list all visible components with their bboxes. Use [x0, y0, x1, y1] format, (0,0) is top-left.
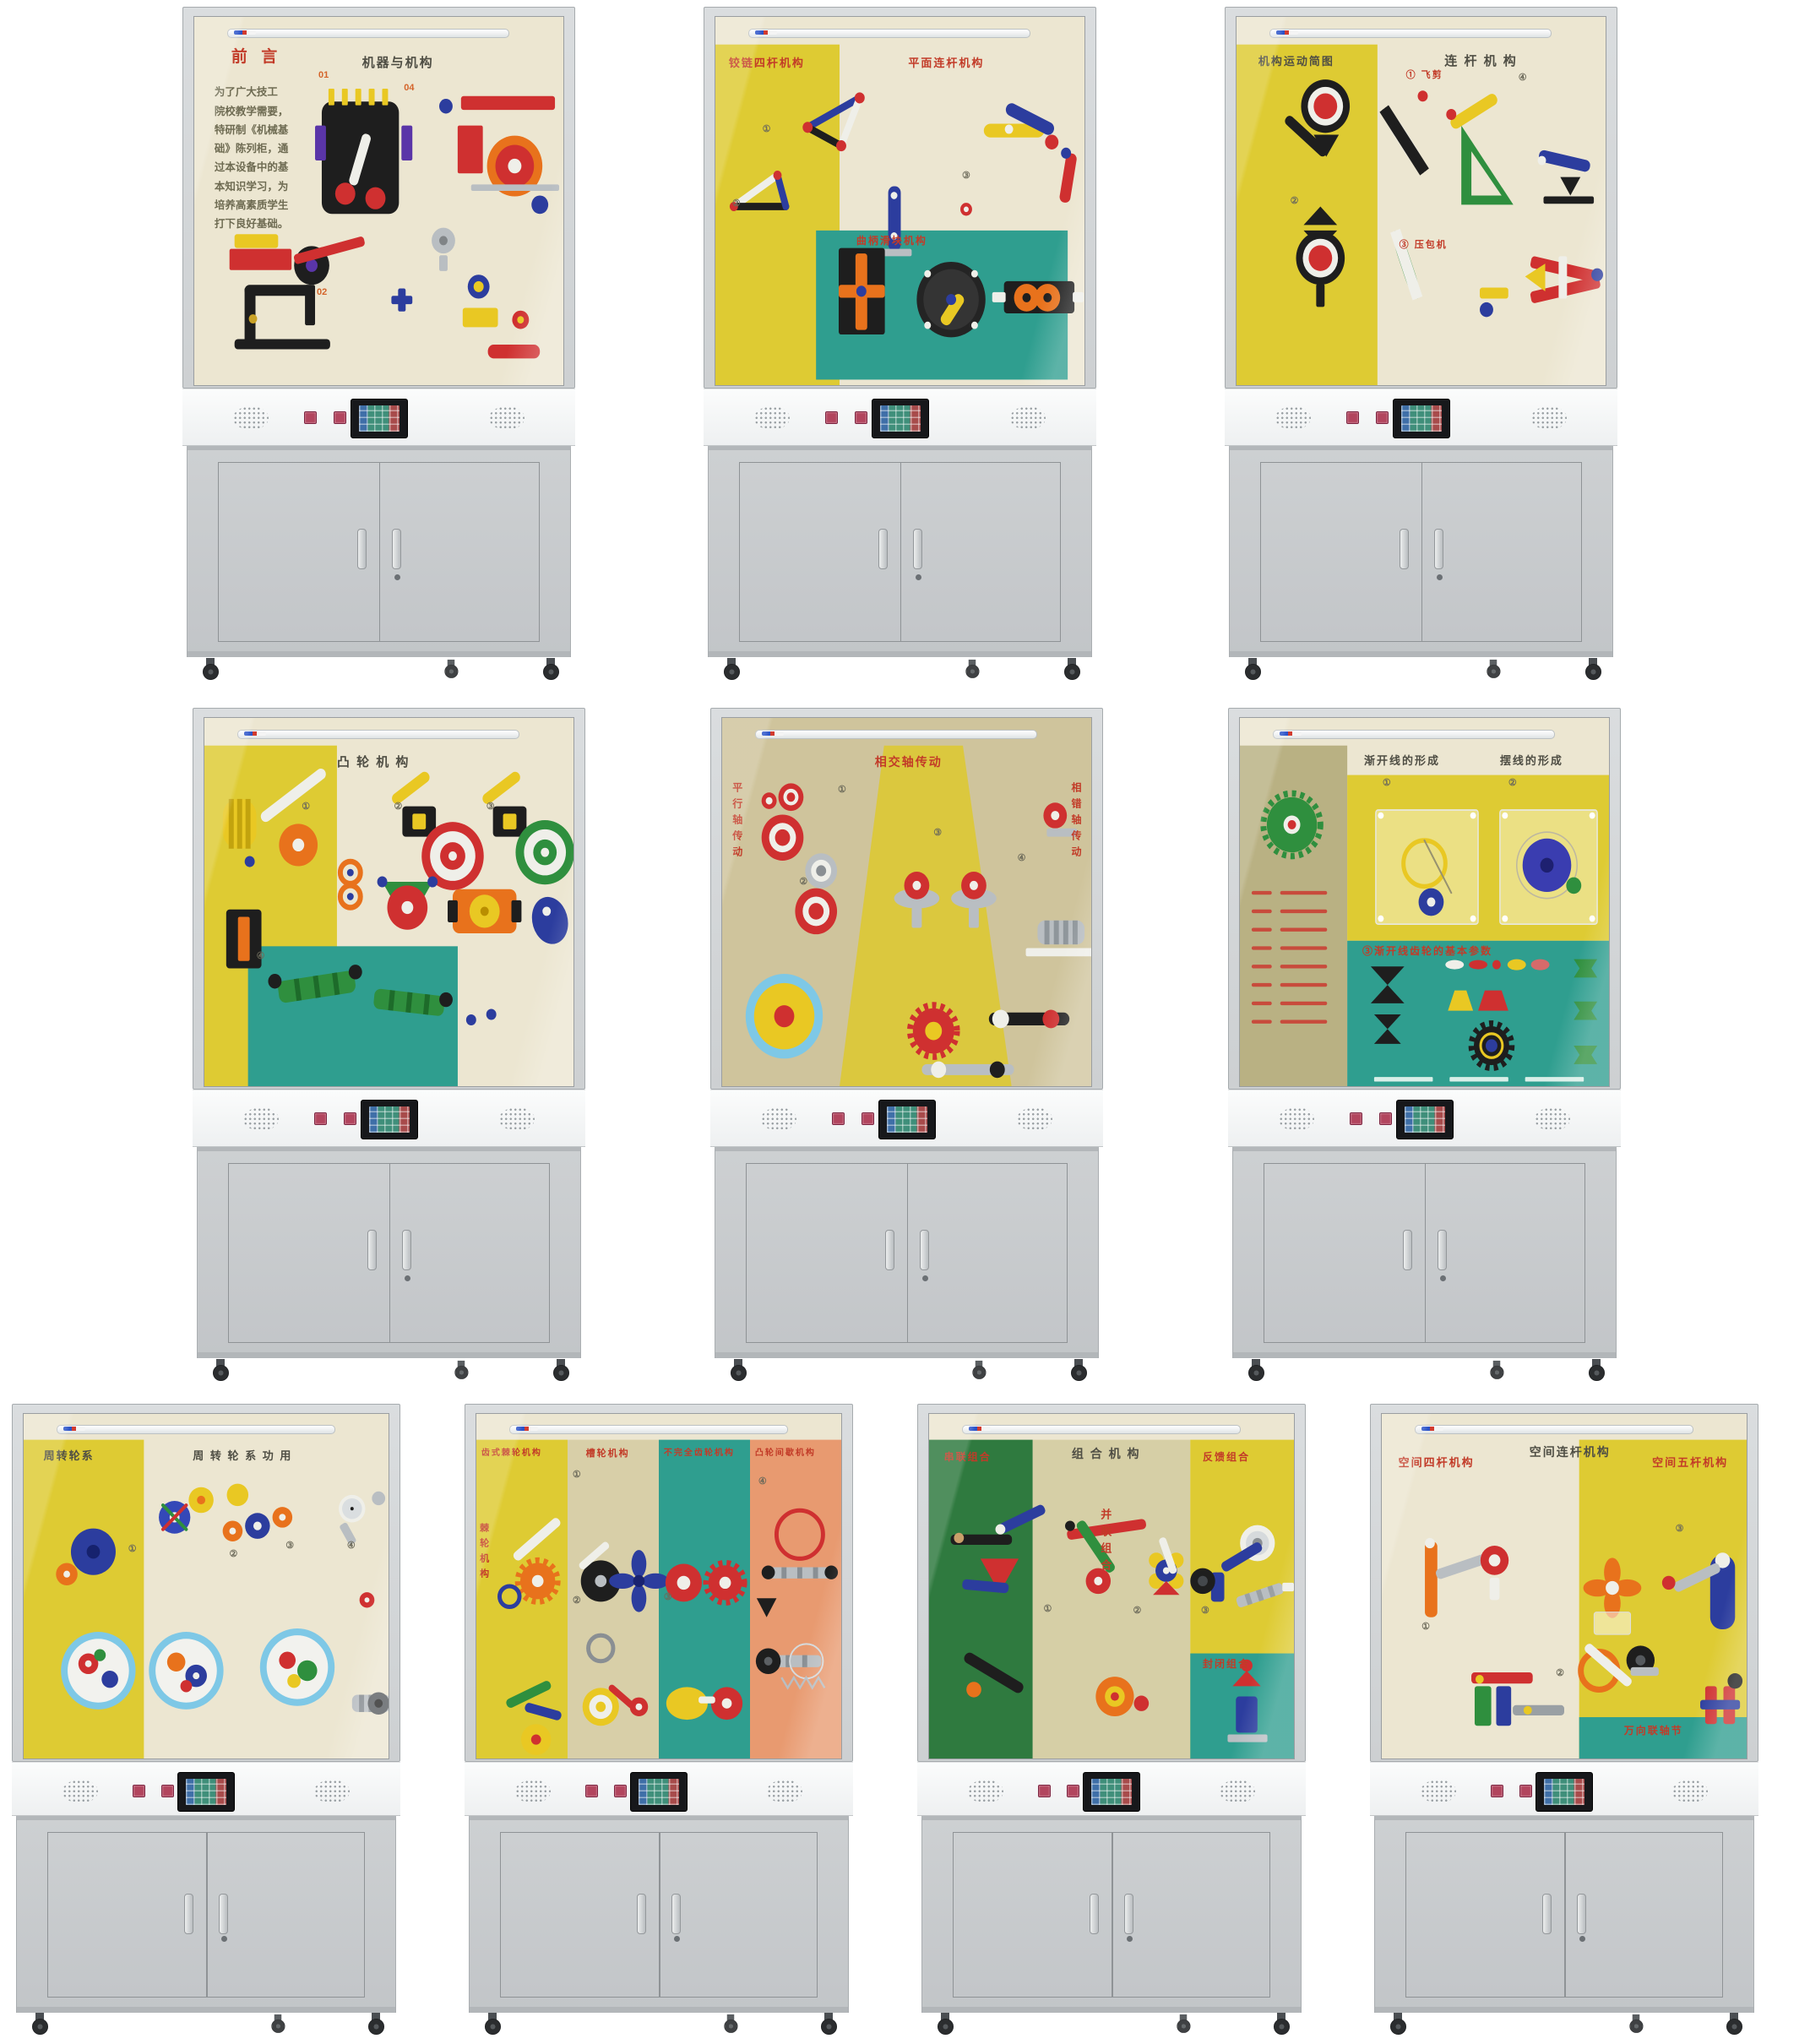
door-handle-left — [885, 1230, 894, 1270]
speaker-grille-left-icon — [1421, 1780, 1456, 1803]
console-button-2 — [344, 1112, 356, 1125]
display-marker: ② — [1508, 777, 1517, 788]
door-handle-left — [357, 529, 367, 569]
caster-wheel — [454, 1361, 470, 1379]
console-button-2 — [1067, 1785, 1079, 1797]
door-handle-right — [1438, 1230, 1447, 1270]
display-title: 机构运动简图 — [1258, 56, 1334, 68]
display-backboard: 铰链四杆机构平面连杆机构曲柄滑块机构①②③ — [715, 16, 1085, 386]
display-title: 反馈组合 — [1203, 1452, 1250, 1464]
display-title: 串联组合 — [944, 1452, 992, 1464]
display-marker: ④ — [1018, 852, 1026, 863]
caster-wheel — [367, 2013, 385, 2035]
console-button-2 — [161, 1785, 174, 1797]
display-title: 连 杆 机 构 — [1444, 54, 1518, 68]
caster-wheel — [552, 1359, 570, 1381]
caster-wheel — [1272, 2013, 1291, 2035]
touchscreen-display — [639, 1779, 679, 1805]
caster-wheel — [211, 1359, 230, 1381]
display-title: 周转轮系 — [44, 1450, 95, 1463]
control-console — [1370, 1762, 1758, 1816]
door-divider — [907, 1163, 909, 1343]
speaker-grille-left-icon — [1279, 1107, 1314, 1131]
display-marker: ② — [1556, 1667, 1564, 1678]
display-marker: ② — [732, 198, 741, 209]
display-backboard: 空间四杆机构空间连杆机构空间五杆机构万向联轴节①②③ — [1381, 1413, 1747, 1759]
console-button-2 — [1519, 1785, 1532, 1797]
door-divider — [1421, 462, 1423, 642]
keyhole-icon — [1437, 574, 1443, 580]
speaker-grille-right-icon — [314, 1780, 350, 1803]
display-backboard: 相交轴传动平行轴传动相错轴传动①②③④ — [721, 717, 1092, 1087]
display-case: 周转轮系周 转 轮 系 功 用①②③④ — [12, 1404, 400, 1762]
caster-wheel — [541, 658, 560, 680]
caster-wheel — [1489, 1361, 1505, 1379]
display-title: 空间连杆机构 — [1530, 1445, 1611, 1459]
keyhole-icon — [1579, 1936, 1585, 1942]
door-handle-left — [1090, 1894, 1099, 1934]
mechanism-models — [1240, 718, 1609, 1086]
fluorescent-lamp — [227, 29, 509, 38]
display-case: 铰链四杆机构平面连杆机构曲柄滑块机构①②③ — [704, 7, 1096, 389]
display-marker: ① — [302, 801, 310, 812]
console-button-1 — [825, 411, 838, 424]
console-button-1 — [585, 1785, 598, 1797]
cabinet-1: 前 言机器与机构010402为了广大技工 院校教学需要， 特研制《机械基 础》陈… — [182, 7, 575, 680]
door-handle-right — [1124, 1894, 1133, 1934]
fluorescent-lamp — [1273, 730, 1555, 739]
caster-row — [465, 2013, 853, 2035]
display-case: 渐开线的形成摆线的形成③渐开线齿轮的基本参数①② — [1228, 708, 1621, 1090]
mechanism-models — [204, 718, 573, 1086]
base-cupboard — [187, 446, 571, 657]
base-cupboard — [708, 446, 1092, 657]
console-button-1 — [1038, 1785, 1051, 1797]
speaker-grille-right-icon — [767, 1780, 802, 1803]
display-title: 摆线的形成 — [1500, 755, 1563, 768]
display-backboard: 机构运动简图连 杆 机 构① 飞剪③ 压包机②④ — [1236, 16, 1606, 386]
base-cupboard — [197, 1147, 581, 1358]
fluorescent-lamp — [755, 730, 1037, 739]
speaker-grille-right-icon — [1010, 406, 1046, 430]
door-handle-left — [1542, 1894, 1552, 1934]
display-marker: ② — [229, 1548, 237, 1559]
console-button-2 — [614, 1785, 627, 1797]
touchscreen — [1396, 1100, 1454, 1139]
fluorescent-lamp — [962, 1425, 1241, 1434]
door-divider — [206, 1832, 208, 1998]
fluorescent-lamp — [509, 1425, 788, 1434]
cabinet-row-1: 前 言机器与机构010402为了广大技工 院校教学需要， 特研制《机械基 础》陈… — [182, 7, 1617, 680]
display-title: 万向联轴节 — [1624, 1726, 1683, 1737]
display-marker: ③ — [664, 1591, 672, 1602]
display-marker: ① — [1043, 1603, 1052, 1614]
speaker-grille-right-icon — [1220, 1780, 1255, 1803]
display-title: 空间四杆机构 — [1399, 1457, 1475, 1470]
touchscreen-display — [1401, 405, 1442, 432]
display-title: 组 合 机 构 — [1072, 1447, 1141, 1460]
touchscreen — [1536, 1772, 1593, 1812]
display-title: ③渐开线齿轮的基本参数 — [1362, 946, 1492, 958]
display-marker: ① — [1421, 1621, 1430, 1632]
base-cupboard — [921, 1816, 1302, 2013]
display-case: 齿式棘轮机构槽轮机构不完全齿轮机构凸轮间歇机构棘轮机构①②③④ — [465, 1404, 853, 1762]
caster-wheel — [1063, 658, 1081, 680]
display-marker: ④ — [1519, 72, 1527, 83]
display-marker: ③ — [285, 1540, 294, 1551]
display-case: 串联组合组 合 机 构并联组合反馈组合封闭组合①②③ — [917, 1404, 1306, 1762]
fluorescent-lamp — [1415, 1425, 1693, 1434]
display-title: 封闭组合 — [1203, 1659, 1250, 1671]
speaker-grille-left-icon — [233, 406, 269, 430]
display-marker: ① — [838, 784, 846, 795]
door-handle-right — [402, 1230, 411, 1270]
console-button-1 — [832, 1112, 845, 1125]
display-marker: ③ — [486, 801, 495, 812]
cabinet-4: 凸 轮 机 构①②③④ — [193, 708, 585, 1381]
base-cupboard — [715, 1147, 1099, 1358]
caster-wheel — [1247, 1359, 1265, 1381]
display-marker: ④ — [347, 1540, 356, 1551]
display-title: 机器与机构 — [362, 56, 434, 70]
door-handle-left — [367, 1230, 377, 1270]
door-handle-right — [671, 1894, 681, 1934]
control-console — [1228, 1090, 1621, 1147]
console-button-1 — [1491, 1785, 1503, 1797]
keyhole-icon — [1127, 1936, 1133, 1942]
caster-wheel — [1587, 1359, 1606, 1381]
display-marker: ② — [799, 876, 807, 887]
speaker-grille-left-icon — [761, 1107, 796, 1131]
touchscreen — [872, 399, 929, 438]
touchscreen — [177, 1772, 235, 1812]
door-handle-left — [1403, 1230, 1412, 1270]
door-handle-right — [920, 1230, 929, 1270]
display-title: 棘轮机构 — [478, 1523, 489, 1584]
display-title: 凸 轮 机 构 — [337, 755, 410, 769]
door-divider — [1425, 1163, 1427, 1343]
speaker-grille-right-icon — [1672, 1780, 1708, 1803]
caster-wheel — [201, 658, 220, 680]
door-handle-left — [878, 529, 888, 569]
caster-wheel — [1389, 2013, 1407, 2035]
display-marker: ② — [1291, 195, 1299, 206]
base-cupboard — [1374, 1816, 1754, 2013]
fluorescent-lamp — [748, 29, 1030, 38]
speaker-grille-left-icon — [968, 1780, 1003, 1803]
console-button-1 — [314, 1112, 327, 1125]
caster-row — [1225, 657, 1617, 680]
display-marker: ① — [763, 123, 771, 134]
mechanism-models — [24, 1414, 389, 1759]
door-divider — [1112, 1832, 1113, 1998]
touchscreen-display — [880, 405, 921, 432]
caster-wheel — [1069, 1359, 1088, 1381]
display-case: 凸 轮 机 构①②③④ — [193, 708, 585, 1090]
display-title: 并联组合 — [1098, 1509, 1111, 1576]
touchscreen-display — [1091, 1779, 1132, 1805]
caster-row — [12, 2013, 400, 2035]
touchscreen — [878, 1100, 936, 1139]
display-marker: ② — [394, 801, 402, 812]
caster-wheel — [722, 2014, 738, 2033]
keyhole-icon — [916, 574, 921, 580]
console-button-2 — [855, 411, 867, 424]
keyhole-icon — [674, 1936, 680, 1942]
console-button-1 — [133, 1785, 145, 1797]
speaker-grille-left-icon — [243, 1107, 279, 1131]
touchscreen — [351, 399, 408, 438]
cabinet-5: 相交轴传动平行轴传动相错轴传动①②③④ — [710, 708, 1103, 1381]
caster-wheel — [1486, 660, 1502, 678]
display-marker: ③ — [933, 827, 942, 838]
mechanism-models — [722, 718, 1091, 1086]
touchscreen-display — [887, 1106, 927, 1133]
speaker-grille-right-icon — [1531, 406, 1567, 430]
display-marker: 04 — [404, 83, 414, 93]
control-console — [704, 389, 1096, 446]
console-button-1 — [304, 411, 317, 424]
display-marker: 02 — [317, 287, 327, 297]
display-title: 槽轮机构 — [586, 1449, 630, 1460]
display-case: 相交轴传动平行轴传动相错轴传动①②③④ — [710, 708, 1103, 1090]
cabinet-8: 齿式棘轮机构槽轮机构不完全齿轮机构凸轮间歇机构棘轮机构①②③④ — [465, 1404, 853, 2035]
cabinet-row-2: 凸 轮 机 构①②③④相交轴传动平行轴传动相错轴传动①②③④渐开线的形成摆线的形… — [193, 708, 1621, 1381]
caster-row — [1228, 1358, 1621, 1381]
caster-row — [917, 2013, 1306, 2035]
touchscreen-display — [186, 1779, 226, 1805]
door-handle-right — [913, 529, 922, 569]
keyhole-icon — [405, 1275, 410, 1281]
display-title: 凸轮间歇机构 — [755, 1449, 816, 1459]
caster-wheel — [965, 660, 981, 678]
caster-wheel — [1175, 2014, 1191, 2033]
display-marker: ① — [573, 1469, 581, 1480]
display-title: 相错轴传动 — [1069, 782, 1081, 862]
caster-row — [1370, 2013, 1758, 2035]
base-cupboard — [469, 1816, 849, 2013]
mechanism-models — [715, 17, 1084, 385]
door-divider — [1564, 1832, 1566, 1998]
speaker-grille-right-icon — [489, 406, 525, 430]
control-console — [193, 1090, 585, 1147]
display-marker: ① — [1383, 777, 1391, 788]
caster-wheel — [269, 2014, 285, 2033]
display-backboard: 周转轮系周 转 轮 系 功 用①②③④ — [23, 1413, 389, 1759]
display-title: ① 飞剪 — [1406, 70, 1443, 81]
display-title: 曲柄滑块机构 — [856, 236, 927, 247]
display-case: 机构运动简图连 杆 机 构① 飞剪③ 压包机②④ — [1225, 7, 1617, 389]
caster-wheel — [1725, 2013, 1743, 2035]
caster-wheel — [729, 1359, 747, 1381]
display-title: 平行轴传动 — [731, 782, 742, 862]
door-handle-right — [392, 529, 401, 569]
control-console — [1225, 389, 1617, 446]
caster-row — [710, 1358, 1103, 1381]
control-console — [182, 389, 575, 446]
door-handle-left — [637, 1894, 646, 1934]
caster-row — [704, 657, 1096, 680]
cabinet-6: 渐开线的形成摆线的形成③渐开线齿轮的基本参数①② — [1228, 708, 1621, 1381]
control-console — [917, 1762, 1306, 1816]
display-case: 前 言机器与机构010402为了广大技工 院校教学需要， 特研制《机械基 础》陈… — [182, 7, 575, 389]
door-divider — [379, 462, 381, 642]
display-title: 铰链四杆机构 — [729, 57, 805, 70]
caster-wheel — [1628, 2014, 1644, 2033]
display-marker: 01 — [318, 70, 329, 80]
touchscreen-display — [359, 405, 400, 432]
display-marker: ④ — [758, 1476, 767, 1487]
display-backboard: 串联组合组 合 机 构并联组合反馈组合封闭组合①②③ — [928, 1413, 1295, 1759]
speaker-grille-right-icon — [1535, 1107, 1570, 1131]
display-marker: ② — [1133, 1605, 1142, 1616]
control-console — [710, 1090, 1103, 1147]
display-title: 渐开线的形成 — [1364, 755, 1440, 768]
display-marker: ④ — [257, 950, 265, 961]
cabinet-row-3: 周转轮系周 转 轮 系 功 用①②③④齿式棘轮机构槽轮机构不完全齿轮机构凸轮间歇… — [12, 1404, 1758, 2035]
cabinet-7: 周转轮系周 转 轮 系 功 用①②③④ — [12, 1404, 400, 2035]
speaker-grille-right-icon — [499, 1107, 535, 1131]
fluorescent-lamp — [237, 730, 519, 739]
console-button-1 — [1350, 1112, 1362, 1125]
touchscreen-display — [369, 1106, 410, 1133]
door-handle-left — [1400, 529, 1409, 569]
display-title: 齿式棘轮机构 — [481, 1449, 542, 1459]
door-divider — [900, 462, 902, 642]
keyhole-icon — [221, 1936, 227, 1942]
touchscreen-display — [1405, 1106, 1445, 1133]
display-title: 相交轴传动 — [875, 755, 943, 769]
cabinet-grid: 前 言机器与机构010402为了广大技工 院校教学需要， 特研制《机械基 础》陈… — [0, 0, 1810, 2044]
fluorescent-lamp — [1269, 29, 1552, 38]
speaker-grille-left-icon — [515, 1780, 551, 1803]
touchscreen-display — [1544, 1779, 1584, 1805]
display-title: 不完全齿轮机构 — [664, 1449, 735, 1459]
door-handle-right — [1434, 529, 1443, 569]
door-divider — [659, 1832, 660, 1998]
display-title: 空间五杆机构 — [1652, 1457, 1728, 1470]
caster-row — [193, 1358, 585, 1381]
speaker-grille-left-icon — [1275, 406, 1311, 430]
door-handle-left — [184, 1894, 193, 1934]
door-divider — [389, 1163, 391, 1343]
caster-wheel — [936, 2013, 954, 2035]
display-marker: ③ — [962, 170, 970, 181]
mechanism-models — [476, 1414, 841, 1759]
display-title: 周 转 轮 系 功 用 — [193, 1450, 292, 1463]
display-backboard: 凸 轮 机 构①②③④ — [204, 717, 574, 1087]
door-handle-right — [219, 1894, 228, 1934]
cabinet-2: 铰链四杆机构平面连杆机构曲柄滑块机构①②③ — [704, 7, 1096, 680]
speaker-grille-right-icon — [1017, 1107, 1052, 1131]
caster-wheel — [819, 2013, 838, 2035]
display-title: ③ 压包机 — [1400, 240, 1448, 251]
touchscreen — [630, 1772, 688, 1812]
caster-wheel — [1584, 658, 1602, 680]
console-button-2 — [1379, 1112, 1392, 1125]
mechanism-models — [929, 1414, 1294, 1759]
display-backboard: 齿式棘轮机构槽轮机构不完全齿轮机构凸轮间歇机构棘轮机构①②③④ — [476, 1413, 842, 1759]
base-cupboard — [16, 1816, 396, 2013]
console-button-2 — [334, 411, 346, 424]
base-cupboard — [1229, 446, 1613, 657]
preface-text: 为了广大技工 院校教学需要， 特研制《机械基 础》陈列柜，通 过本设备中的基 本… — [215, 83, 325, 233]
speaker-grille-left-icon — [63, 1780, 98, 1803]
console-button-2 — [1376, 411, 1389, 424]
caster-row — [182, 657, 575, 680]
keyhole-icon — [394, 574, 400, 580]
base-cupboard — [1232, 1147, 1617, 1358]
display-marker: ① — [128, 1543, 137, 1554]
cabinet-10: 空间四杆机构空间连杆机构空间五杆机构万向联轴节①②③ — [1370, 1404, 1758, 2035]
touchscreen — [1393, 399, 1450, 438]
touchscreen — [361, 1100, 418, 1139]
display-case: 空间四杆机构空间连杆机构空间五杆机构万向联轴节①②③ — [1370, 1404, 1758, 1762]
cabinet-3: 机构运动简图连 杆 机 构① 飞剪③ 压包机②④ — [1225, 7, 1617, 680]
caster-wheel — [1243, 658, 1262, 680]
display-marker: ③ — [1676, 1523, 1684, 1534]
keyhole-icon — [922, 1275, 928, 1281]
caster-wheel — [443, 660, 459, 678]
display-marker: ② — [573, 1595, 581, 1606]
control-console — [12, 1762, 400, 1816]
console-button-1 — [1346, 411, 1359, 424]
caster-wheel — [971, 1361, 987, 1379]
caster-wheel — [30, 2013, 49, 2035]
fluorescent-lamp — [57, 1425, 335, 1434]
console-button-2 — [862, 1112, 874, 1125]
caster-wheel — [483, 2013, 502, 2035]
control-console — [465, 1762, 853, 1816]
door-handle-right — [1577, 1894, 1586, 1934]
keyhole-icon — [1440, 1275, 1446, 1281]
caster-wheel — [722, 658, 741, 680]
display-backboard: 渐开线的形成摆线的形成③渐开线齿轮的基本参数①② — [1239, 717, 1610, 1087]
speaker-grille-left-icon — [754, 406, 790, 430]
display-marker: ③ — [1201, 1605, 1209, 1616]
display-title: 平面连杆机构 — [908, 57, 984, 70]
touchscreen — [1083, 1772, 1140, 1812]
display-title: 前 言 — [231, 48, 280, 67]
cabinet-9: 串联组合组 合 机 构并联组合反馈组合封闭组合①②③ — [917, 1404, 1306, 2035]
display-backboard: 前 言机器与机构010402为了广大技工 院校教学需要， 特研制《机械基 础》陈… — [193, 16, 564, 386]
